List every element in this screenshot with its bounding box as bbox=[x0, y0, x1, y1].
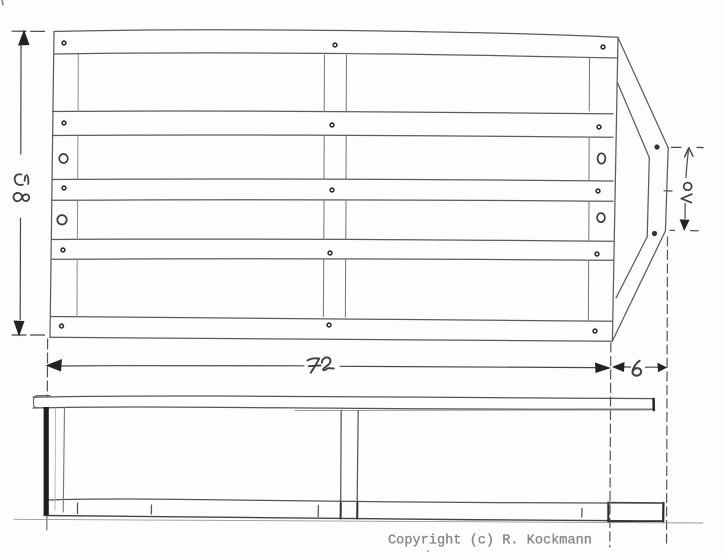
svg-text:Copyright (c) R. Kockmann: Copyright (c) R. Kockmann bbox=[388, 534, 592, 549]
